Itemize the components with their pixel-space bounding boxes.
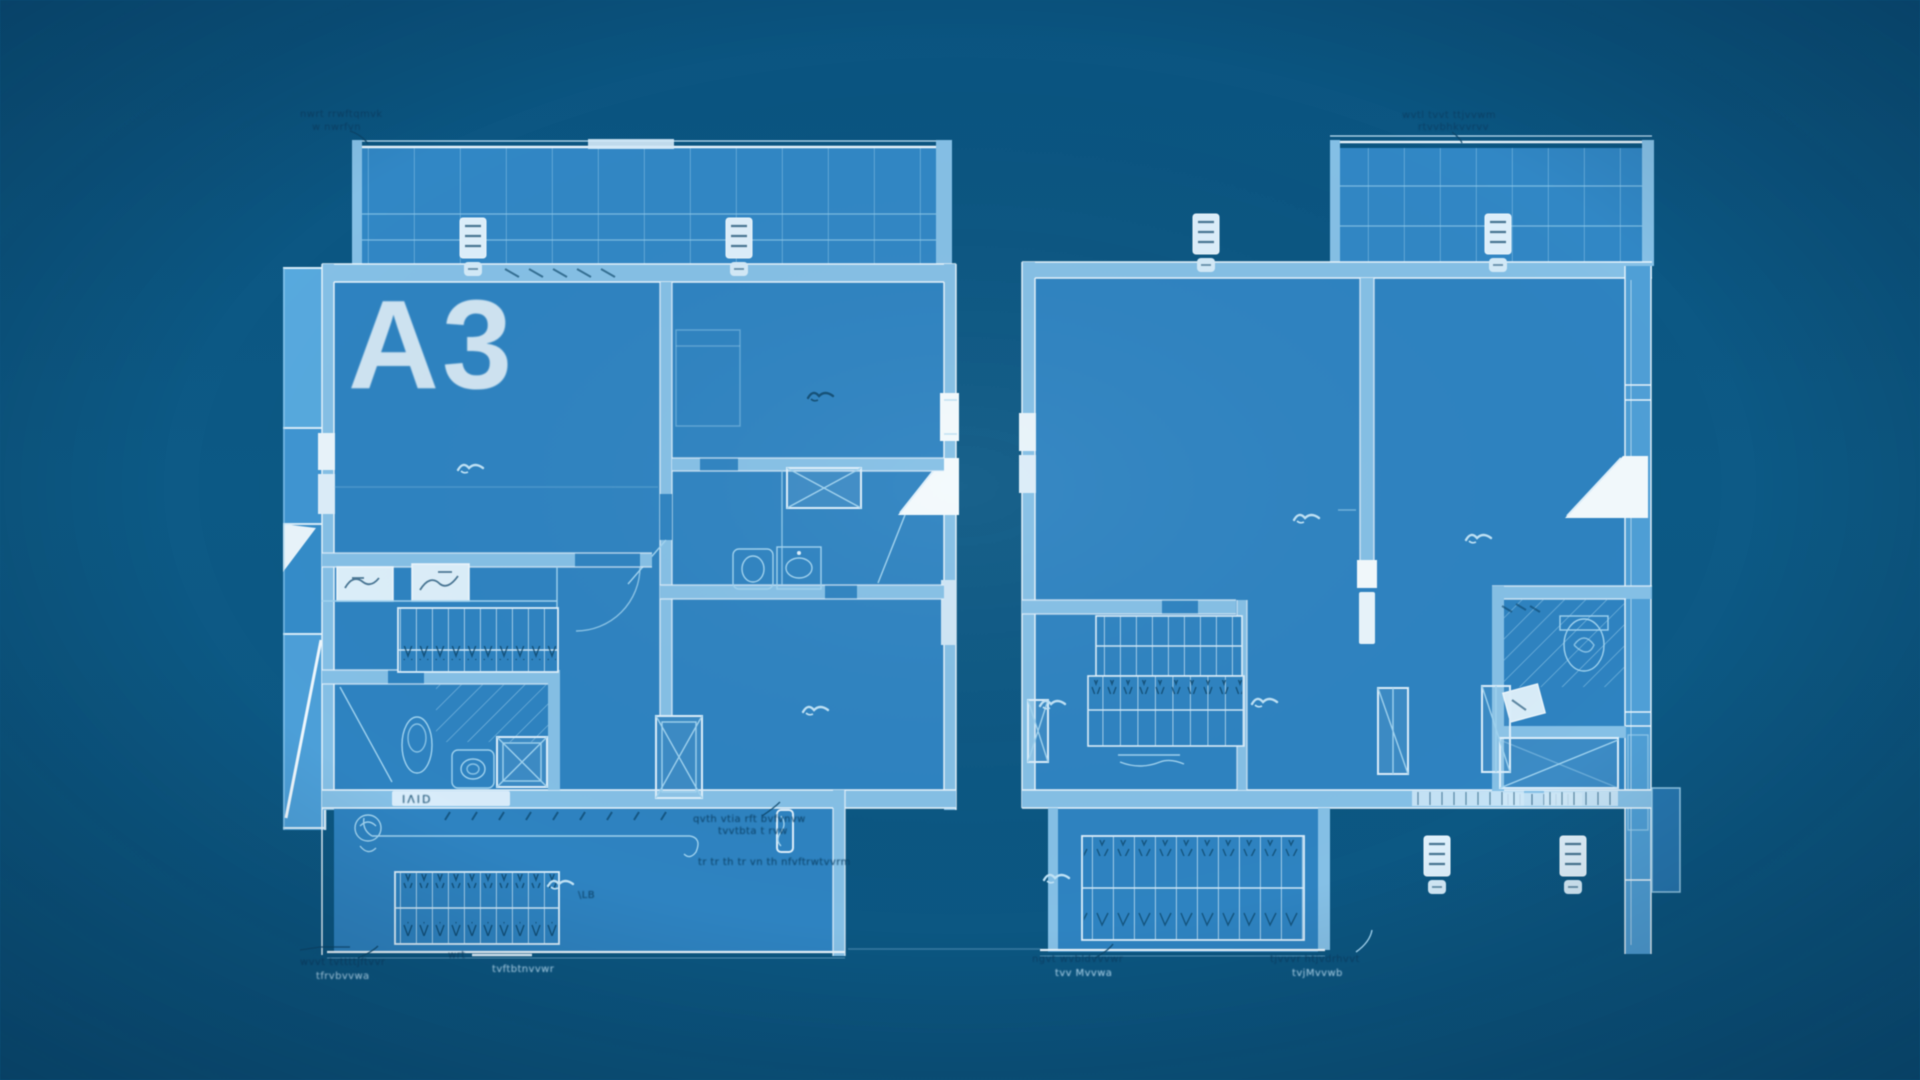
vignette-overlay: [0, 0, 1920, 1080]
blueprint-stage: ΙΛΙD A3: [0, 0, 1920, 1080]
blueprint-canvas: ΙΛΙD A3: [0, 0, 1920, 1080]
